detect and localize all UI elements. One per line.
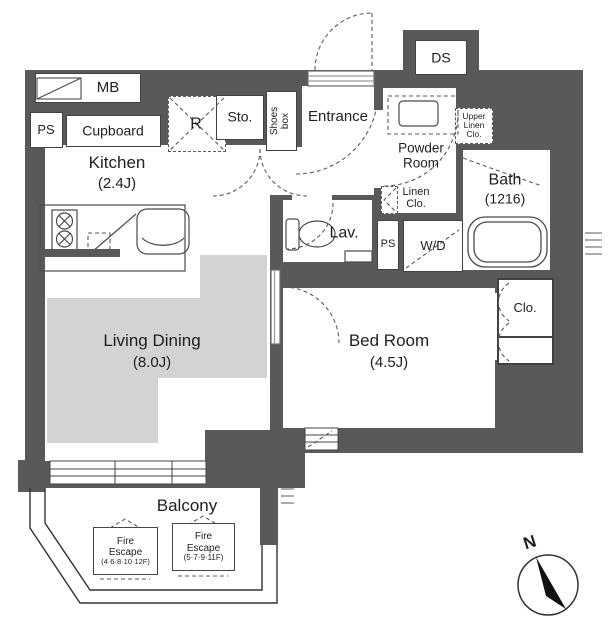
entrance-door-arc — [315, 13, 372, 70]
washer-dryer-label: W/D — [420, 239, 445, 253]
kitchen-label: Kitchen — [89, 154, 146, 172]
fire-escape-2-line3: (5·7·9·11F) — [173, 554, 234, 563]
living-dining-size-label: (8.0J) — [133, 355, 171, 371]
wall-balcony-top — [45, 461, 305, 488]
bath-label: Bath — [489, 171, 522, 188]
mb-label: MB — [97, 80, 120, 96]
balcony-label: Balcony — [157, 497, 217, 515]
north-arrow-icon — [536, 557, 566, 609]
fire-escape-box-2: Fire Escape (5·7·9·11F) — [172, 523, 235, 571]
entrance-label: Entrance — [308, 109, 368, 125]
fire-escape-1-line3: (4·6·8·10·12F) — [94, 558, 157, 566]
linen-closet-label: Linen Clo. — [403, 187, 430, 211]
powder-door-gap — [372, 110, 384, 188]
refrigerator-label: R — [190, 115, 202, 132]
closet-box — [497, 278, 554, 365]
bed-room-label: Bed Room — [349, 332, 429, 350]
lavatory-label: Lav. — [329, 224, 358, 241]
room-hall — [262, 147, 374, 195]
fire-escape-2-line1: Fire — [173, 531, 234, 542]
powder-room-label: Powder Room — [398, 141, 444, 170]
room-lavatory — [283, 200, 372, 262]
bath-size-label: (1216) — [485, 191, 525, 206]
lav-door-gap — [292, 193, 332, 202]
kitchen-size-label: (2.4J) — [98, 176, 136, 192]
cupboard-label: Cupboard — [82, 123, 144, 138]
wall-bedroom-bottom — [283, 426, 555, 453]
floor-plan: Fire Escape (4·6·8·10·12F) Fire Escape (… — [0, 0, 610, 629]
upper-linen-label: Upper Linen Clo. — [462, 112, 485, 140]
wall-bottom-right-corner — [495, 360, 555, 430]
storage-label: Sto. — [228, 109, 253, 124]
bed-room-size-label: (4.5J) — [370, 355, 408, 371]
fire-escape-1-line1: Fire — [94, 536, 157, 547]
north-compass — [518, 555, 578, 615]
compass-circle — [518, 555, 578, 615]
room-bath — [463, 150, 550, 270]
living-dining-label: Living Dining — [103, 332, 200, 350]
linen-closet-box — [381, 186, 398, 214]
balcony-pillar — [260, 487, 278, 545]
mb-box — [35, 73, 141, 103]
ps-mid-label: PS — [381, 239, 396, 251]
ps-top-label: PS — [37, 123, 54, 137]
closet-label: Clo. — [513, 301, 536, 315]
wall-living-bedroom — [268, 290, 283, 438]
wall-left-foot — [18, 460, 45, 492]
ds-label: DS — [431, 50, 450, 65]
fire-escape-box-1: Fire Escape (4·6·8·10·12F) — [93, 527, 158, 575]
shoes-box-label: Shoes box — [270, 107, 292, 135]
north-label: N — [521, 532, 538, 553]
